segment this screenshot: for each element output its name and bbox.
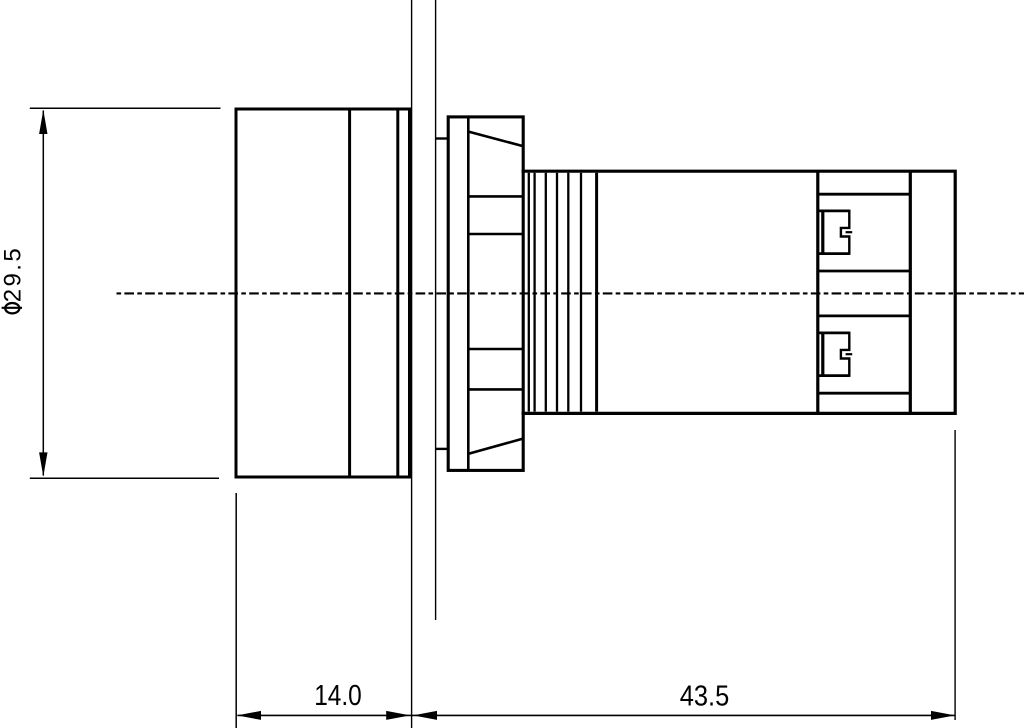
- svg-text:14.0: 14.0: [314, 680, 362, 712]
- svg-text:43.5: 43.5: [680, 681, 730, 713]
- svg-text:29.5: 29.5: [0, 248, 27, 302]
